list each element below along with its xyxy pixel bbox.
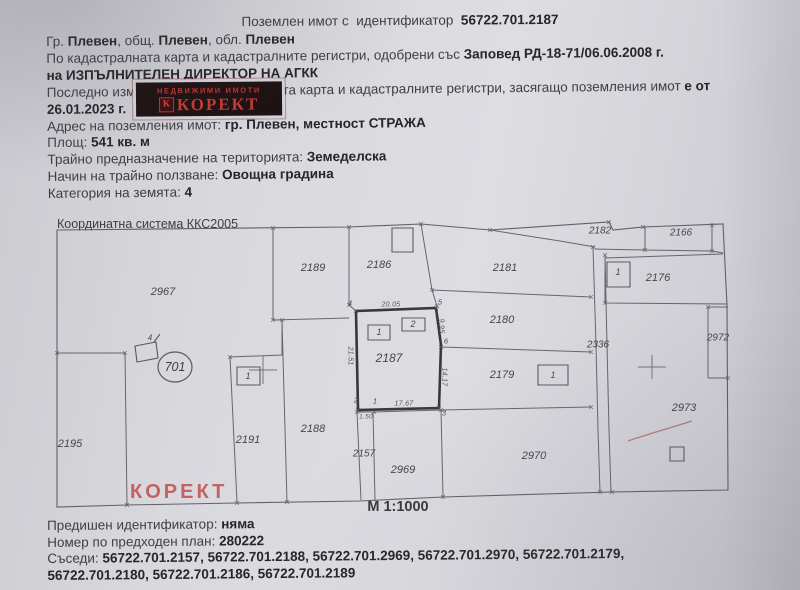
dimension-left-edge: 21.51 xyxy=(347,346,354,365)
parcel-label-2188: 2188 xyxy=(301,423,325,435)
logo-brand-row: К КОРЕКТ xyxy=(159,95,260,113)
parcel-label-2189: 2189 xyxy=(301,262,325,274)
vertex-label-6: 6 xyxy=(444,337,448,346)
korekt-agency-logo: НЕДВИЖИМИ ИМОТИ К КОРЕКТ xyxy=(133,78,285,119)
vertex-label-4: 4 xyxy=(348,299,352,308)
parcel-label-2166: 2166 xyxy=(670,228,692,239)
dimension-right-upper-edge: 9.95 xyxy=(438,319,445,334)
parcel-label-2181: 2181 xyxy=(493,262,517,274)
logo-brand-text: КОРЕКТ xyxy=(177,95,260,113)
parcel-label-2191: 2191 xyxy=(236,434,260,446)
parcel-label-2186: 2186 xyxy=(367,259,391,271)
dimension-bottom-edge: 17.67 xyxy=(394,401,413,408)
cadastral-sketch-document: Поземлен имот с идентификатор 56722.701.… xyxy=(0,0,800,590)
parcel-label-2157: 2157 xyxy=(353,449,375,460)
dimension-right-lower-edge: 14.17 xyxy=(441,367,448,386)
parcel-label-2967: 2967 xyxy=(151,286,175,298)
parcel-label-2970: 2970 xyxy=(522,450,546,462)
korekt-watermark: КОРЕКТ xyxy=(130,481,227,504)
building-label-2191-1: 1 xyxy=(245,371,250,381)
logo-monogram-icon: К xyxy=(159,97,174,112)
parcel-label-2176: 2176 xyxy=(646,272,670,284)
building-label-2179-1: 1 xyxy=(550,370,555,380)
parcel-label-2195: 2195 xyxy=(58,438,82,450)
building-label-2176-1: 1 xyxy=(615,267,620,277)
parcel-label-2972: 2972 xyxy=(707,333,729,344)
dimension-top-edge: 20.05 xyxy=(381,302,400,309)
vertex-label-1: 1 xyxy=(373,397,377,406)
parcel-label-2187-subject: 2187 xyxy=(376,351,403,365)
building-label-2187-1: 1 xyxy=(376,327,381,337)
cadastral-region-number: 701 xyxy=(165,360,186,374)
parcel-label-2180: 2180 xyxy=(490,314,514,326)
building-label-701-4: 4 xyxy=(148,334,152,343)
parcel-label-2179: 2179 xyxy=(490,369,514,381)
map-label-layer: 2967 2189 2186 2181 2182 2166 2176 2180 … xyxy=(0,0,800,590)
parcel-label-2336: 2336 xyxy=(587,340,609,351)
parcel-label-2182: 2182 xyxy=(589,226,611,237)
building-label-2187-2: 2 xyxy=(410,319,415,329)
parcel-label-2969: 2969 xyxy=(391,464,415,476)
dimension-strip-width: 1.50 xyxy=(359,414,373,421)
parcel-label-2973: 2973 xyxy=(672,402,696,414)
vertex-label-3: 3 xyxy=(442,409,446,418)
vertex-label-2: 2 xyxy=(354,396,358,405)
vertex-label-5: 5 xyxy=(438,298,442,307)
logo-tagline: НЕДВИЖИМИ ИМОТИ xyxy=(157,85,261,95)
